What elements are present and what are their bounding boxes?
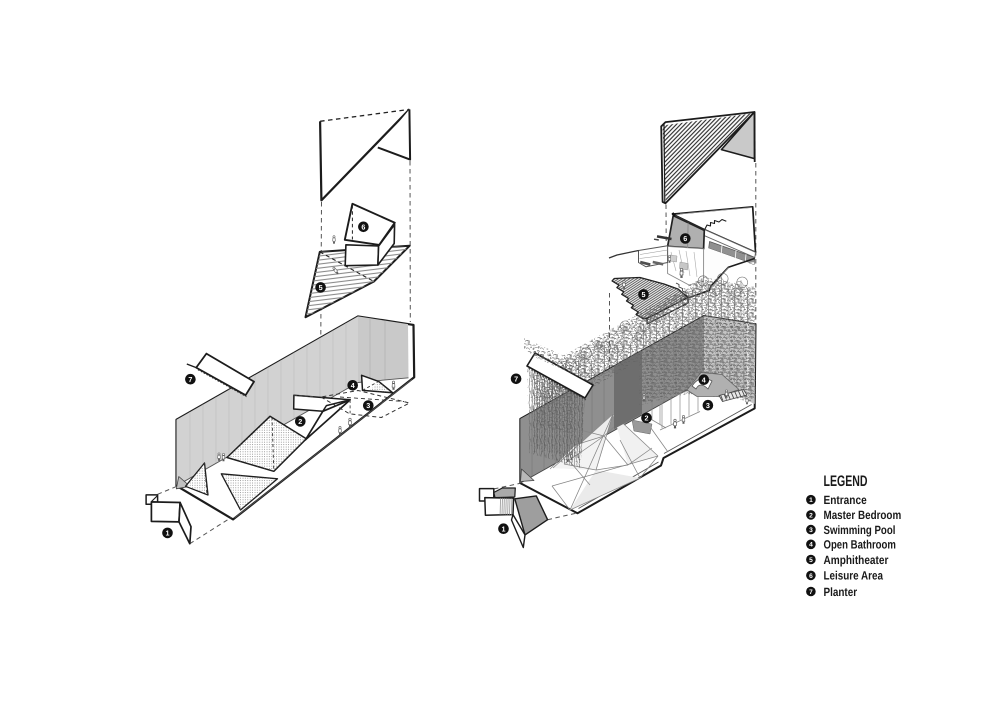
svg-text:1: 1	[809, 497, 813, 504]
svg-text:2: 2	[645, 414, 649, 423]
svg-text:6: 6	[683, 234, 687, 243]
svg-text:3: 3	[809, 527, 813, 534]
svg-text:4: 4	[809, 542, 813, 549]
svg-text:6: 6	[361, 222, 365, 231]
svg-text:3: 3	[366, 401, 370, 410]
svg-text:Master Bedroom: Master Bedroom	[824, 508, 902, 522]
svg-text:Leisure Area: Leisure Area	[824, 569, 884, 583]
svg-text:4: 4	[702, 375, 706, 384]
svg-text:6: 6	[809, 573, 813, 580]
svg-text:Entrance: Entrance	[824, 493, 867, 507]
svg-text:5: 5	[642, 290, 646, 299]
svg-text:5: 5	[319, 283, 323, 292]
svg-text:Planter: Planter	[824, 585, 858, 599]
svg-text:1: 1	[166, 529, 170, 538]
svg-text:7: 7	[188, 375, 192, 384]
svg-text:2: 2	[809, 512, 813, 519]
svg-text:7: 7	[514, 374, 518, 383]
svg-text:4: 4	[351, 381, 355, 390]
svg-text:LEGEND: LEGEND	[824, 473, 868, 490]
svg-text:Swimming Pool: Swimming Pool	[824, 523, 896, 537]
svg-text:7: 7	[809, 589, 813, 596]
svg-text:3: 3	[706, 401, 710, 410]
svg-text:1: 1	[502, 524, 506, 533]
svg-text:5: 5	[809, 557, 813, 564]
svg-text:2: 2	[298, 417, 302, 426]
svg-text:Amphitheater: Amphitheater	[824, 553, 889, 567]
svg-text:Open Bathroom: Open Bathroom	[824, 538, 896, 552]
